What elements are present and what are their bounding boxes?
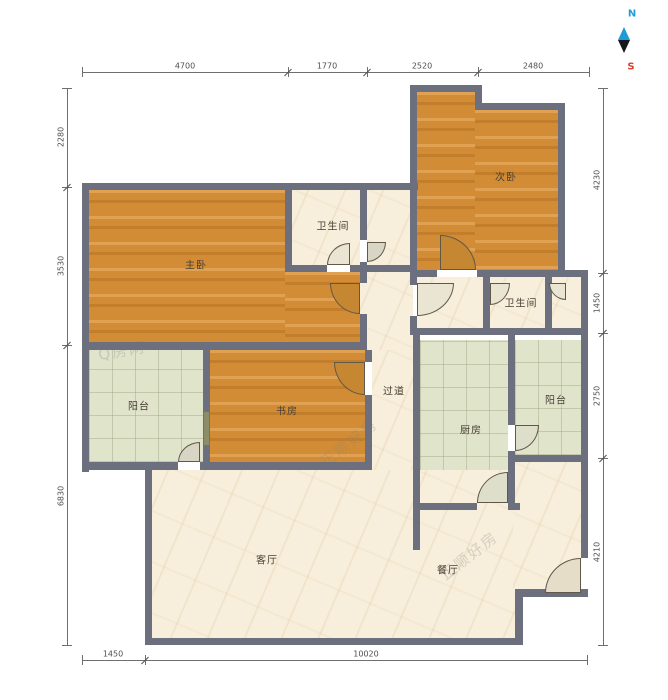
room-label-master-bedroom: 主卧 [185, 257, 207, 272]
dim-label-left-0: 2280 [57, 127, 66, 147]
room-label-bathroom1: 卫生间 [317, 218, 350, 233]
room-label-dining-room: 餐厅 [437, 562, 459, 577]
compass-north-label: N [628, 9, 636, 20]
wall [410, 328, 588, 335]
wall [410, 85, 417, 277]
dim-tick [62, 645, 72, 646]
window [204, 412, 209, 445]
wall [285, 190, 292, 272]
wall [483, 277, 490, 328]
wall [413, 503, 420, 550]
dim-tick [598, 88, 608, 89]
wall [82, 183, 89, 472]
wall [360, 183, 367, 240]
dim-label-right-0: 4230 [593, 170, 602, 190]
dim-label-top-3: 2480 [523, 62, 543, 71]
dim-tick [589, 67, 590, 77]
room-label-bathroom2: 卫生间 [505, 295, 538, 310]
wall [581, 272, 588, 458]
compass-needle-north [618, 27, 630, 40]
wall [581, 458, 588, 558]
dimension-line-left [67, 88, 68, 645]
dim-tick [82, 655, 83, 665]
room-label-living-room: 客厅 [256, 552, 278, 567]
room-label-hallway: 过道 [383, 383, 405, 398]
compass-south-label: S [627, 62, 634, 73]
wall [475, 103, 565, 110]
dim-label-left-2: 6830 [57, 486, 66, 506]
wall [515, 589, 523, 645]
wall [145, 638, 523, 645]
dim-label-right-3: 4210 [593, 542, 602, 562]
wall [203, 350, 210, 470]
wall [410, 85, 482, 92]
wall [365, 395, 372, 470]
wall [145, 462, 152, 645]
compass-needle-south [618, 40, 630, 53]
room-label-study: 书房 [276, 403, 298, 418]
dimension-line-bottom [82, 660, 587, 661]
dim-tick [82, 67, 83, 77]
floor-hallway-upper [360, 272, 413, 350]
wall [413, 335, 420, 503]
dim-tick [62, 88, 72, 89]
dimension-line-right [603, 88, 604, 645]
room-label-balcony-right: 阳台 [545, 392, 567, 407]
dim-tick [598, 645, 608, 646]
dim-label-top-1: 1770 [317, 62, 337, 71]
floor-plan: Q房网 正顺好房 正顺好房 [0, 0, 668, 700]
wall [508, 455, 588, 462]
wall [410, 270, 437, 277]
wall [200, 462, 372, 470]
dim-label-top-2: 2520 [412, 62, 432, 71]
dim-label-bottom-0: 1450 [103, 650, 123, 659]
room-label-balcony-left: 阳台 [128, 398, 150, 413]
dim-label-right-2: 2750 [593, 386, 602, 406]
wall [350, 265, 362, 272]
wall [410, 277, 417, 285]
wall [477, 270, 588, 277]
dim-tick [587, 655, 588, 665]
dim-label-right-1: 1450 [593, 293, 602, 313]
dim-label-top-0: 4700 [175, 62, 195, 71]
floor-hallway-lower [372, 350, 413, 470]
wall [410, 316, 417, 328]
wall [360, 265, 412, 272]
wall [82, 183, 418, 190]
wall [508, 335, 515, 425]
floor-second-bedroom-b [475, 110, 558, 270]
wall [82, 342, 367, 350]
dimension-line-top [82, 72, 589, 73]
wall [365, 350, 372, 362]
room-label-kitchen: 厨房 [460, 422, 482, 437]
dim-label-bottom-1: 10020 [353, 650, 378, 659]
dim-label-left-1: 3530 [57, 256, 66, 276]
wall [413, 503, 477, 510]
wall [508, 503, 520, 510]
wall [558, 103, 565, 277]
wall [285, 265, 327, 272]
room-label-second-bedroom: 次卧 [495, 169, 517, 184]
wall [82, 462, 178, 470]
